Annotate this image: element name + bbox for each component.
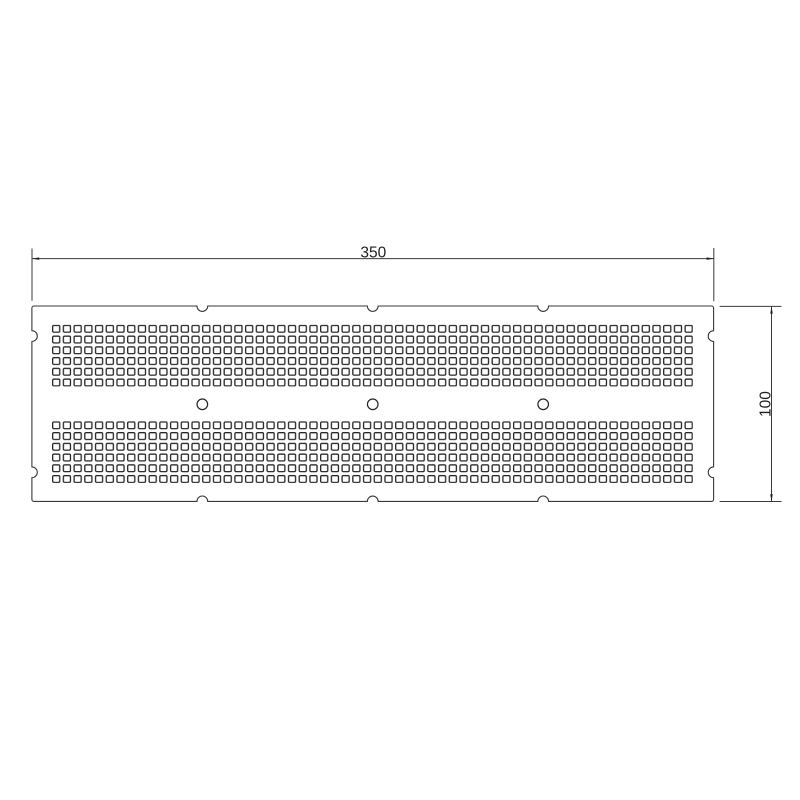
svg-text:100: 100 <box>757 391 774 417</box>
svg-text:350: 350 <box>360 245 386 262</box>
